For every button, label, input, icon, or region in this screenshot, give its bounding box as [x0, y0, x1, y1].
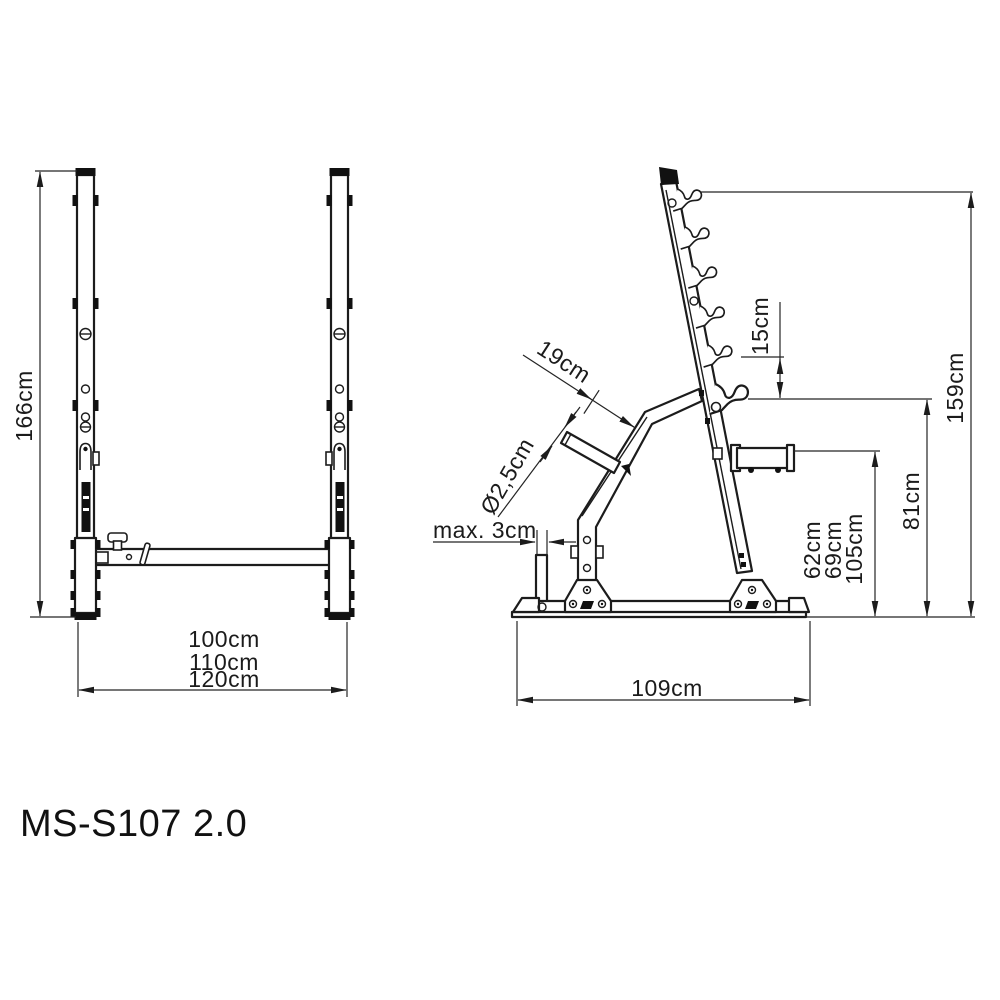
- dim-label-hook-spacing: 15cm: [747, 297, 773, 355]
- dumbbell-rack-post: [661, 181, 752, 573]
- dim-base-depth: 109cm: [517, 621, 810, 706]
- jcup-clip-left: [93, 452, 99, 465]
- dim-side-total-height: 159cm: [942, 193, 971, 616]
- dim-hook-spacing: 15cm: [747, 297, 780, 398]
- dim-front-width: 100cm 110cm 120cm: [78, 622, 347, 697]
- base-frame: [512, 580, 809, 617]
- storage-peg: [561, 432, 620, 473]
- dim-label-max-gap: max. 3cm: [433, 517, 537, 543]
- dim-peg-diameter: Ø2,5cm: [475, 407, 580, 519]
- dim-rest-height: 81cm: [898, 400, 927, 616]
- dim-label-rest-arm-length: 19cm: [533, 335, 596, 389]
- technical-drawing: 166cm 100cm 110cm 120cm: [0, 0, 1000, 1000]
- dim-label-rest-height: 81cm: [898, 472, 924, 530]
- front-view-drawing: 166cm 100cm 110cm 120cm: [11, 168, 355, 697]
- jcup-clip-right: [326, 452, 332, 465]
- dim-label-peg-diameter: Ø2,5cm: [475, 433, 539, 518]
- dim-label-spotter-height-3: 105cm: [841, 513, 867, 585]
- bar-stop: [536, 555, 547, 603]
- dim-spotter-height: 62cm 69cm 105cm: [799, 452, 875, 616]
- dim-label-width-option-3: 120cm: [188, 666, 260, 692]
- side-view-drawing: 159cm 81cm 62cm 69cm 105cm 15cm 19cm: [433, 167, 975, 706]
- model-title: MS-S107 2.0: [20, 803, 247, 846]
- dim-label-base-depth: 109cm: [631, 675, 703, 701]
- dim-label-total-height: 159cm: [942, 352, 968, 424]
- dim-front-height: 166cm: [11, 171, 77, 617]
- dim-label-front-height: 166cm: [11, 370, 37, 442]
- dim-rest-arm-length: 19cm: [514, 330, 651, 442]
- dim-max-gap: max. 3cm: [433, 517, 576, 554]
- technical-drawing-sheet: 166cm 100cm 110cm 120cm: [0, 0, 1000, 1000]
